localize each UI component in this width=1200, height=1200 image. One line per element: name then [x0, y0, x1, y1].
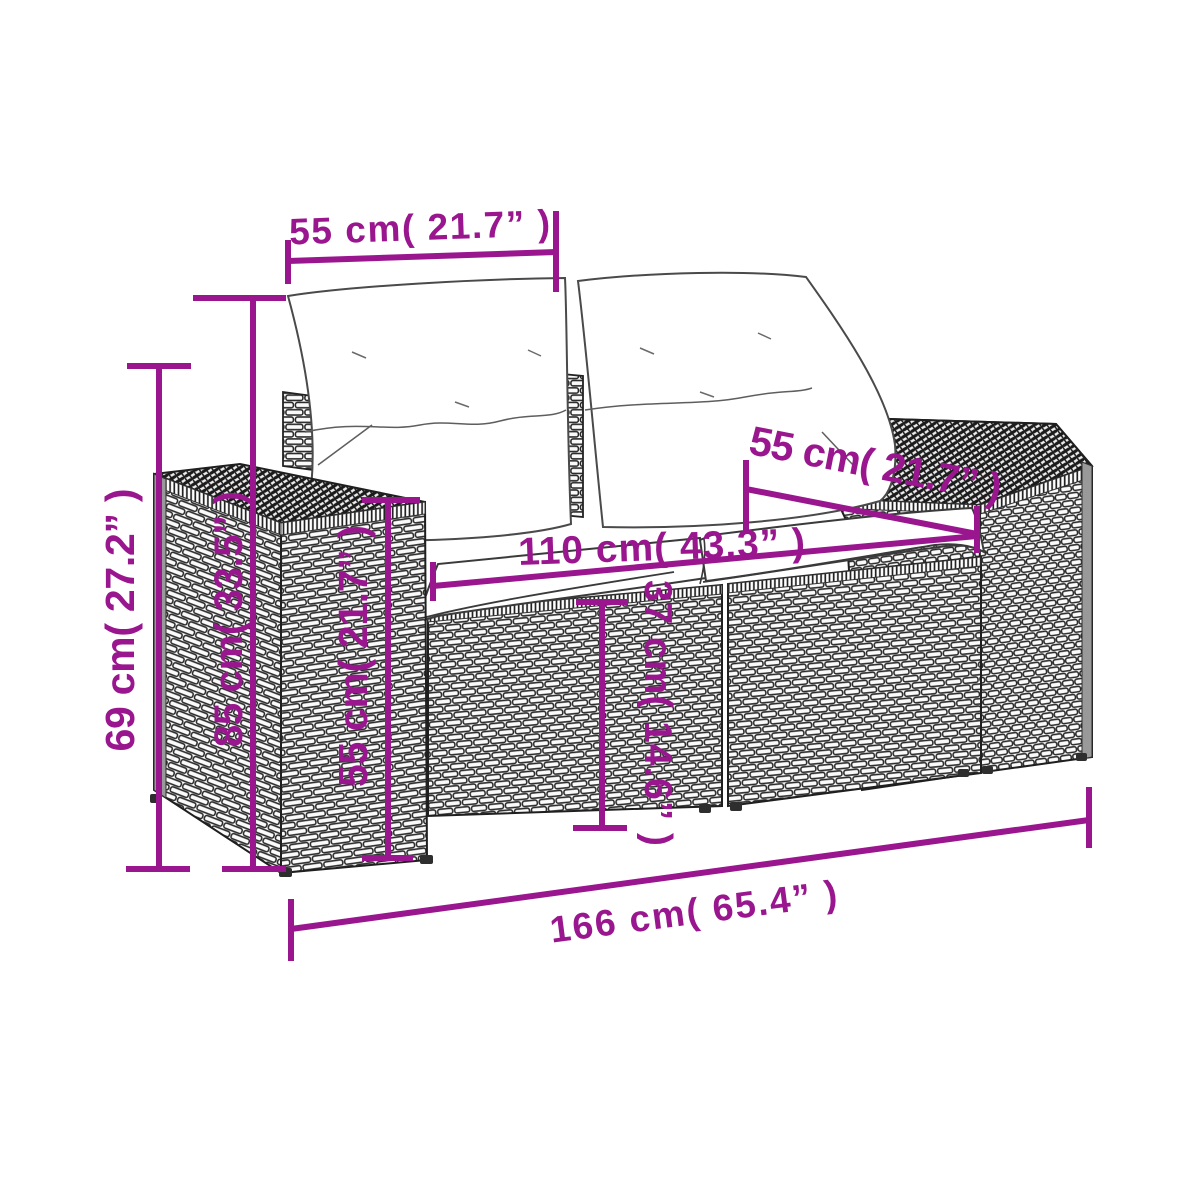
svg-text:85 cm( 33.5” ): 85 cm( 33.5” ): [207, 491, 251, 747]
svg-text:69 cm( 27.2” ): 69 cm( 27.2” ): [97, 489, 143, 752]
svg-text:37 cm( 14.6” ): 37 cm( 14.6” ): [636, 580, 679, 846]
svg-text:55 cm( 21.7” ): 55 cm( 21.7” ): [330, 525, 376, 787]
